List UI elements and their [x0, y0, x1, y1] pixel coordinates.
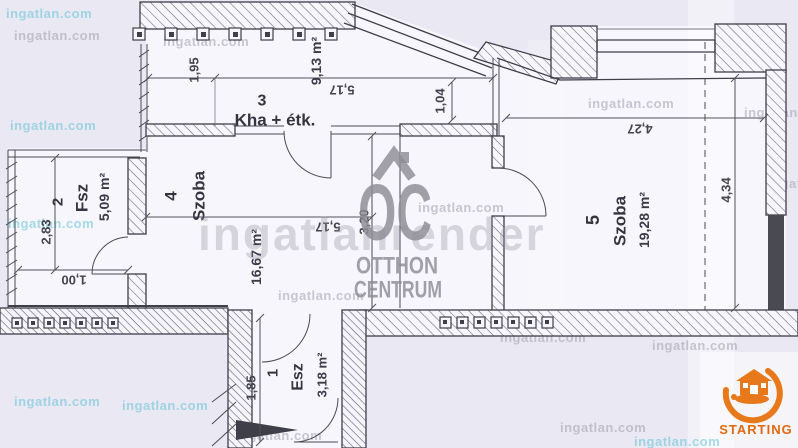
watermark: ingatlan.com	[14, 28, 100, 43]
starting-label: STARTING	[719, 422, 792, 437]
wall-right-upper	[766, 70, 786, 215]
room5-number: 5	[583, 215, 603, 225]
room5-area: 19,28 m²	[636, 192, 652, 248]
watermark: ingatlan.com	[10, 118, 96, 133]
room2-number: 2	[50, 198, 67, 206]
wall-bottom-right	[360, 310, 798, 336]
wall-top	[140, 2, 355, 29]
starting-hand-thumb	[731, 394, 737, 400]
dim-4-34: 4,34	[719, 177, 734, 203]
starting-house-window-left	[743, 383, 748, 388]
room2-name: Fsz	[73, 184, 92, 212]
room1-name: Esz	[290, 363, 307, 391]
room1-number: 1	[265, 369, 282, 377]
otthon-centrum-logo: OC OTTHON CENTRUM	[354, 152, 442, 304]
wall-hall-top	[400, 124, 497, 136]
room5-name: Szoba	[611, 195, 630, 246]
dim-1-04: 1,04	[433, 88, 448, 114]
oc-monogram: OC	[358, 168, 432, 257]
oc-line1: OTTHON	[356, 253, 438, 280]
squares-bottom-middle	[440, 317, 553, 328]
room2-area: 5,09 m²	[96, 173, 112, 222]
wall-room3-room4	[146, 124, 235, 136]
room1-wall-right	[342, 310, 366, 448]
floor-plan-drawing: ingatlan.com ingatlan.com ingatlan.com i…	[0, 0, 798, 448]
watermark: ingatlan.com	[278, 288, 364, 303]
room3-name: Kha + étk.	[235, 111, 316, 130]
dim-2-83: 2,83	[39, 219, 54, 244]
dim-1-95: 1,95	[187, 57, 202, 82]
dim-5-17-top: 5,17	[329, 83, 354, 98]
room4-number: 4	[162, 191, 181, 201]
dim-1-85: 1,85	[244, 375, 259, 400]
wall-pier-right	[715, 24, 786, 72]
room1-area: 3,18 m²	[315, 352, 330, 397]
dim-1-00: 1,00	[61, 273, 86, 288]
squares-bottom-left	[12, 318, 118, 328]
oc-line2: CENTRUM	[354, 277, 442, 304]
scan-artifact-band-2	[528, 40, 564, 340]
room3-area: 9,13 m²	[308, 37, 324, 86]
starting-house-door	[750, 385, 758, 395]
wall-pier-left	[551, 26, 597, 78]
wall-room5-above-door	[492, 136, 504, 168]
wall-right-lower	[768, 215, 784, 312]
watermark: ingatlan.com	[6, 6, 92, 21]
floor-plan-scan: ingatlan.com ingatlan.com ingatlan.com i…	[0, 0, 798, 448]
watermark: ingatlan.com	[634, 434, 720, 448]
watermark: ingatlan.com	[560, 420, 646, 435]
watermark: ingatlan.com	[652, 338, 738, 353]
dim-4-27: 4,27	[627, 122, 652, 137]
watermark: ingatlan.com	[14, 394, 100, 409]
wall-room2-room4-upper	[128, 158, 146, 234]
starting-house-window-right	[761, 383, 766, 388]
starting-hand	[735, 394, 769, 404]
watermark: ingatlan.com	[122, 398, 208, 413]
room3-number: 3	[258, 93, 267, 110]
watermark: ingatlan.com	[588, 96, 674, 111]
